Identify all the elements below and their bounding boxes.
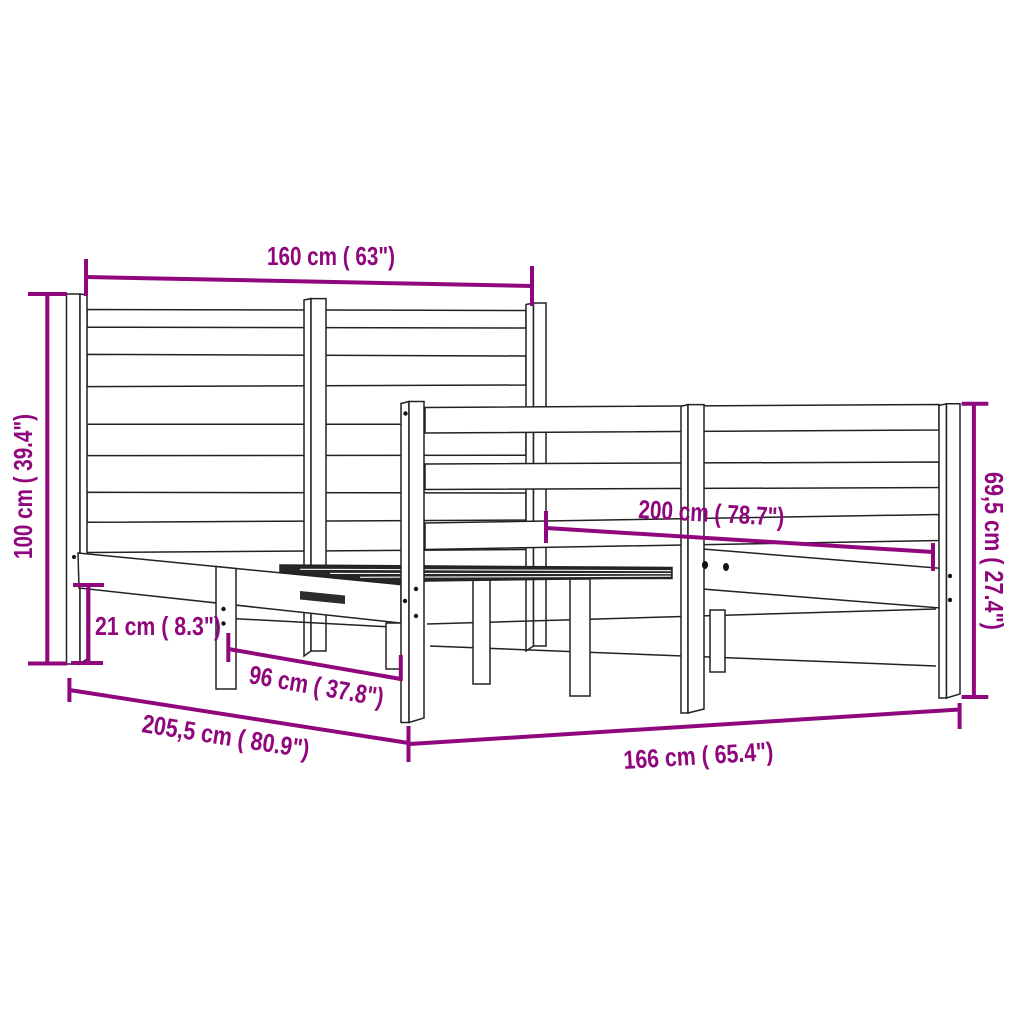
svg-text:21 cm ( 8.3"): 21 cm ( 8.3") xyxy=(95,611,221,641)
svg-text:69,5 cm ( 27.4"): 69,5 cm ( 27.4") xyxy=(979,472,1009,630)
svg-text:166 cm ( 65.4"): 166 cm ( 65.4") xyxy=(623,736,775,775)
svg-text:96 cm ( 37.8"): 96 cm ( 37.8") xyxy=(247,659,386,712)
svg-text:160 cm ( 63"): 160 cm ( 63") xyxy=(267,241,395,271)
svg-text:100 cm ( 39.4"): 100 cm ( 39.4") xyxy=(8,414,38,559)
svg-text:205,5 cm ( 80.9"): 205,5 cm ( 80.9") xyxy=(140,708,312,764)
